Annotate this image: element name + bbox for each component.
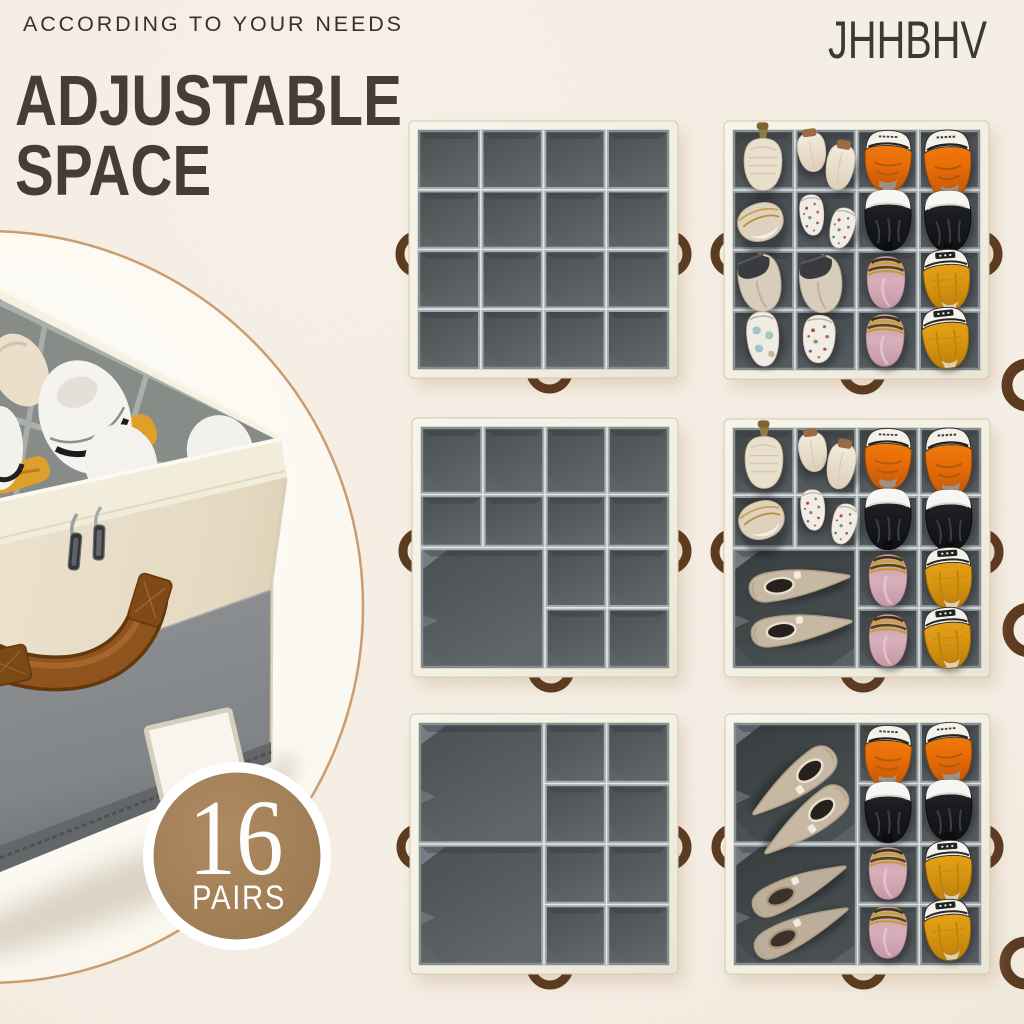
svg-text:SPACE: SPACE [15, 130, 211, 210]
svg-text:PAIRS: PAIRS [192, 878, 286, 917]
svg-text:ACCORDING TO YOUR NEEDS: ACCORDING TO YOUR NEEDS [23, 12, 404, 36]
svg-text:JHHBHV: JHHBHV [828, 10, 988, 69]
svg-text:ADJUSTABLE: ADJUSTABLE [15, 60, 402, 140]
